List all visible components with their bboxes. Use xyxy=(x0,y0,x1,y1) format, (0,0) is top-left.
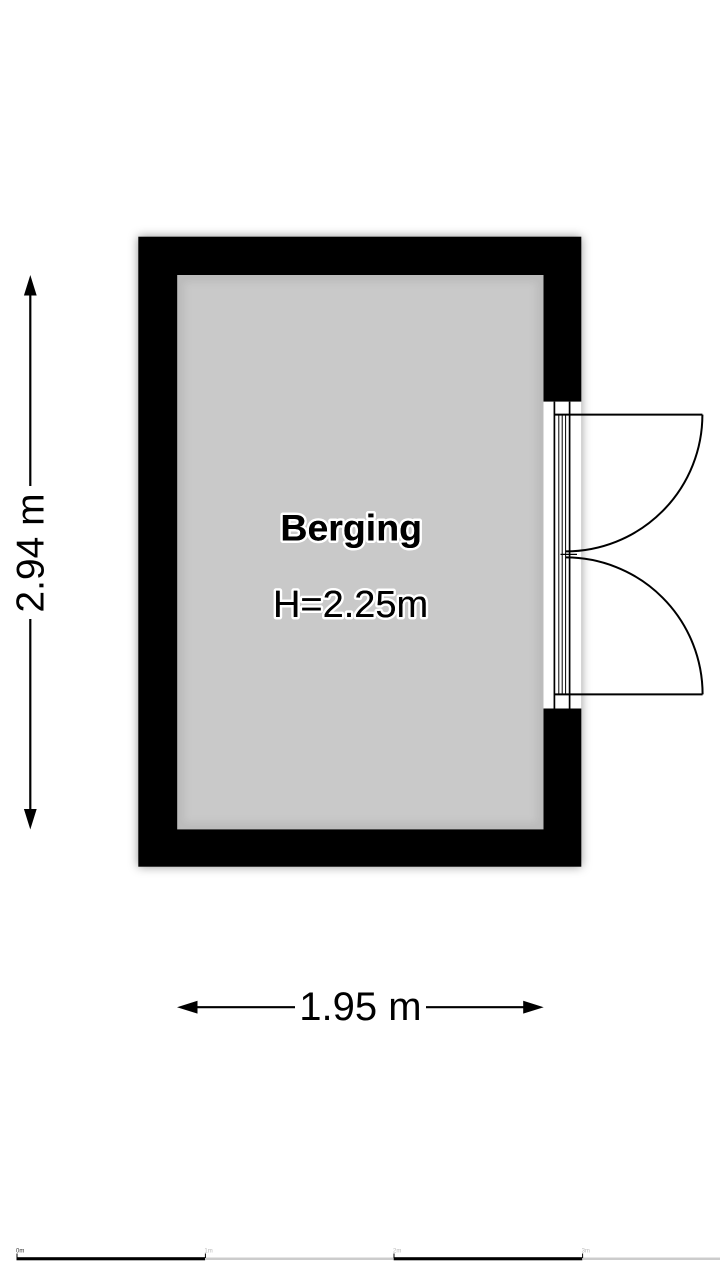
svg-text:1m: 1m xyxy=(204,1249,212,1255)
svg-text:2m: 2m xyxy=(393,1249,401,1255)
svg-text:2.94 m: 2.94 m xyxy=(10,493,53,612)
svg-text:1.95 m: 1.95 m xyxy=(299,985,421,1029)
svg-text:H=2.25m: H=2.25m xyxy=(273,584,428,626)
svg-text:0m: 0m xyxy=(16,1249,24,1255)
svg-text:3m: 3m xyxy=(582,1249,590,1255)
svg-text:Berging: Berging xyxy=(280,507,422,549)
